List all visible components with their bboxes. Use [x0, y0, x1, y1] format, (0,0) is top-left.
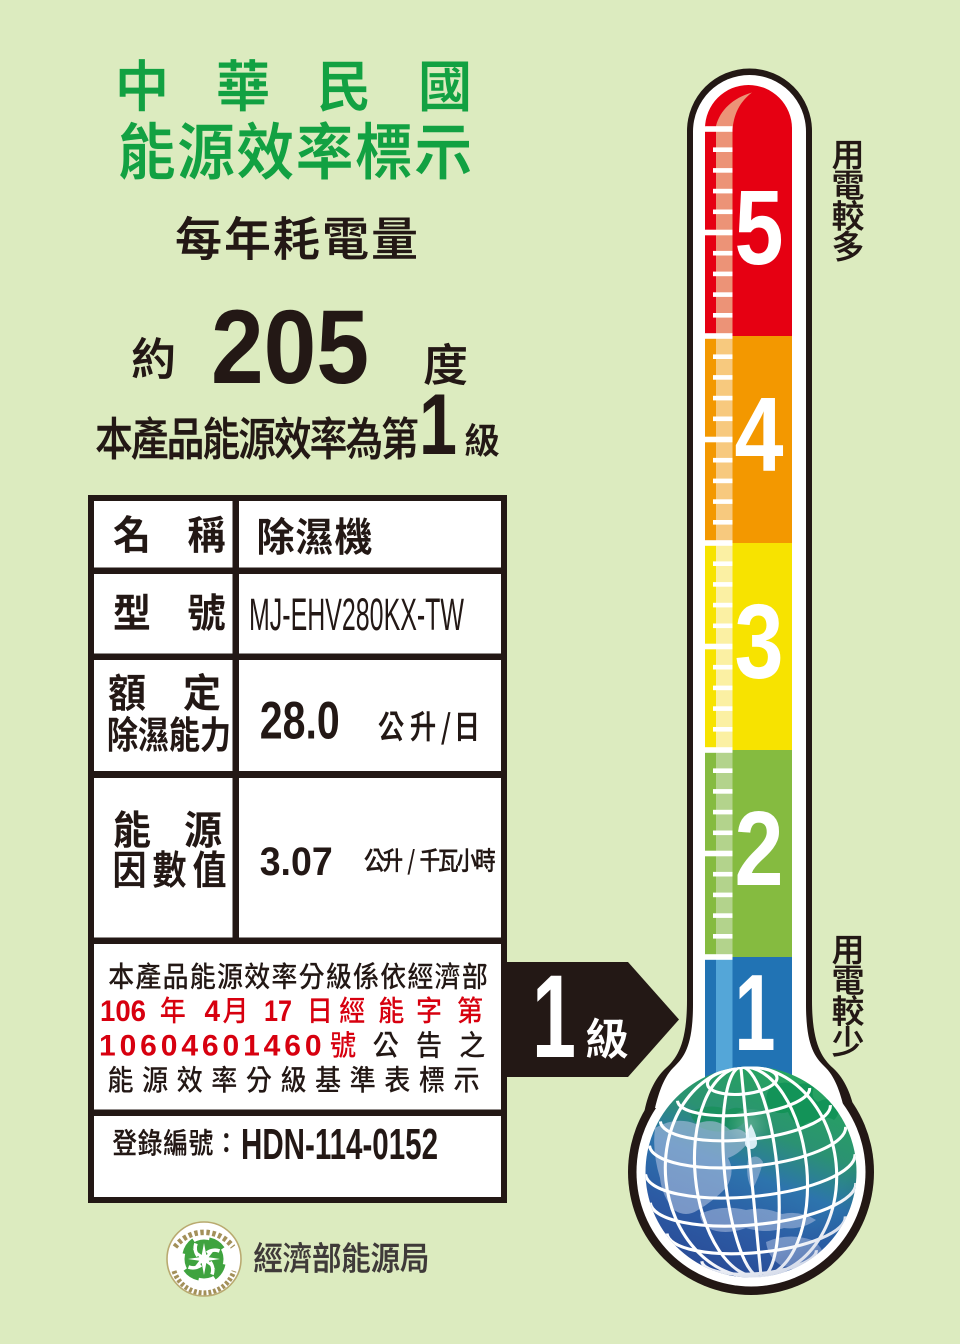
- svg-text:MJ-EHV280KX-TW: MJ-EHV280KX-TW: [249, 589, 464, 640]
- svg-text:4: 4: [205, 995, 221, 1028]
- svg-text:205: 205: [211, 289, 369, 406]
- svg-text:1: 1: [532, 951, 576, 1083]
- svg-text:17: 17: [264, 995, 292, 1028]
- svg-text:5: 5: [735, 169, 784, 287]
- svg-text:4: 4: [735, 376, 784, 494]
- svg-text:28.0: 28.0: [260, 692, 340, 751]
- svg-text:106: 106: [100, 995, 146, 1028]
- svg-text:2: 2: [735, 790, 784, 908]
- svg-text:HDN-114-0152: HDN-114-0152: [241, 1120, 438, 1169]
- svg-text:1: 1: [419, 377, 457, 473]
- svg-text:10604601460: 10604601460: [99, 1030, 325, 1063]
- svg-text:3: 3: [735, 583, 784, 701]
- svg-text:1: 1: [735, 952, 776, 1074]
- svg-text:3.07: 3.07: [260, 840, 333, 884]
